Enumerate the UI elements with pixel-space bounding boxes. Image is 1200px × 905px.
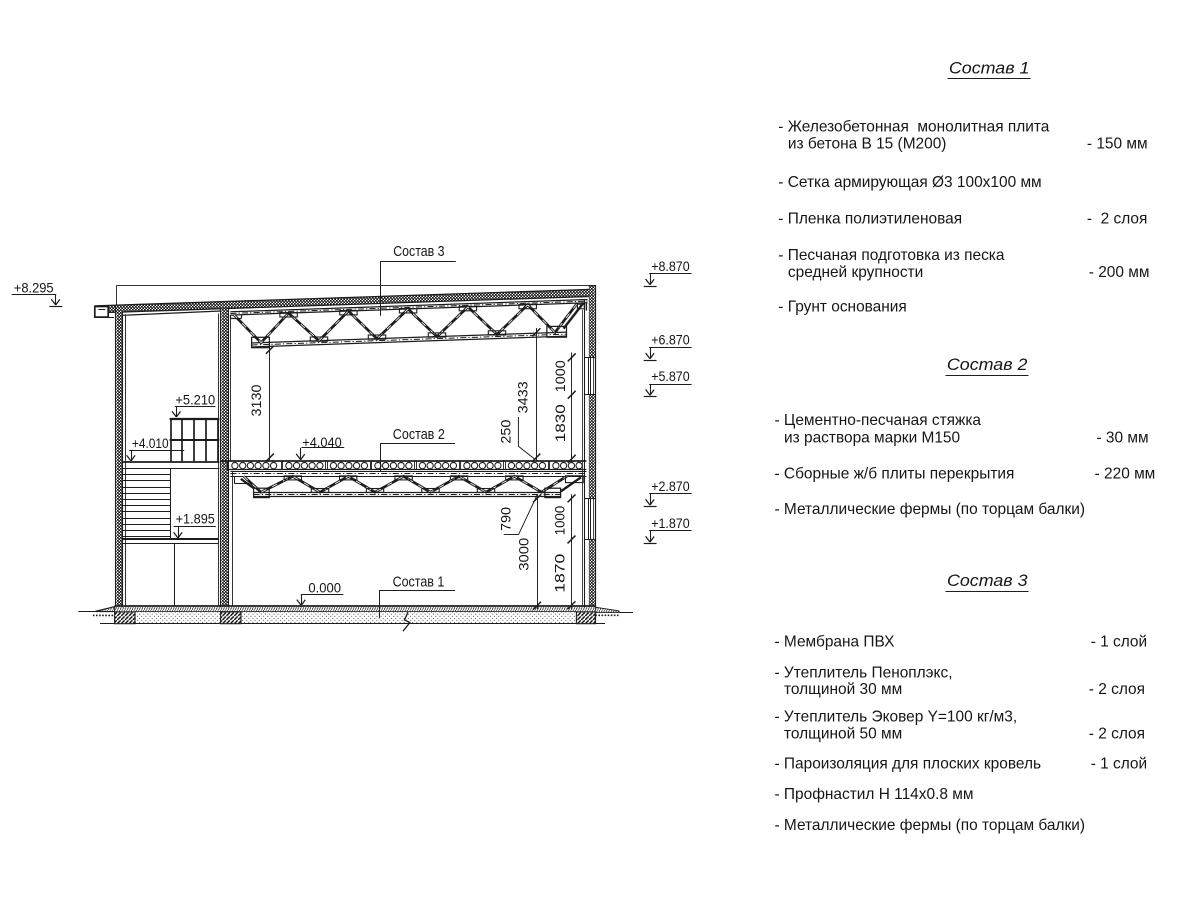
svg-text:- Металлические фермы (по торц: - Металлические фермы (по торцам балки) bbox=[775, 501, 1086, 518]
svg-text:+2.870: +2.870 bbox=[651, 479, 690, 495]
svg-text:- 1 слой: - 1 слой bbox=[1091, 634, 1147, 651]
svg-text:Состав 2: Состав 2 bbox=[393, 427, 445, 443]
svg-text:- Цементно-песчаная стяжка: - Цементно-песчаная стяжка bbox=[775, 412, 982, 429]
svg-text:- Металлические фермы (по торц: - Металлические фермы (по торцам балки) bbox=[775, 817, 1086, 834]
svg-text:+1.895: +1.895 bbox=[176, 511, 215, 527]
svg-text:+4.010: +4.010 bbox=[132, 436, 169, 452]
svg-text:- Пароизоляция для плоских кро: - Пароизоляция для плоских кровель bbox=[775, 756, 1042, 773]
svg-text:3130: 3130 bbox=[248, 384, 264, 416]
svg-text:Состав 3: Состав 3 bbox=[393, 244, 444, 260]
svg-text:1000: 1000 bbox=[552, 506, 568, 536]
svg-text:- Мембрана ПВХ: - Мембрана ПВХ bbox=[775, 634, 895, 651]
svg-text:+5.210: +5.210 bbox=[175, 392, 215, 408]
svg-text:- Песчаная подготовка из песка: - Песчаная подготовка из песка bbox=[778, 247, 1005, 264]
svg-text:- 150 мм: - 150 мм bbox=[1087, 136, 1148, 153]
svg-text:из бетона В 15 (М200): из бетона В 15 (М200) bbox=[788, 136, 947, 153]
svg-text:+4.040: +4.040 bbox=[302, 435, 341, 451]
svg-text:- Железобетонная монолитная п: - Железобетонная монолитная плита bbox=[778, 119, 1049, 136]
svg-text:+6.870: +6.870 bbox=[651, 333, 690, 349]
svg-text:толщиной 50 мм: толщиной 50 мм bbox=[784, 726, 902, 743]
svg-text:1000: 1000 bbox=[552, 360, 568, 392]
svg-text:- Профнастил Н 114х0.8 мм: - Профнастил Н 114х0.8 мм bbox=[775, 786, 974, 803]
svg-text:1870: 1870 bbox=[552, 554, 568, 593]
svg-text:- 2 слоя: - 2 слоя bbox=[1089, 726, 1145, 743]
svg-text:+8.295: +8.295 bbox=[14, 280, 54, 296]
svg-text:Состав 2: Состав 2 bbox=[947, 355, 1028, 374]
svg-text:+8.870: +8.870 bbox=[651, 259, 690, 275]
svg-text:- Грунт основания: - Грунт основания bbox=[778, 299, 906, 316]
svg-text:Состав 3: Состав 3 bbox=[947, 571, 1028, 590]
svg-text:790: 790 bbox=[498, 507, 514, 531]
svg-text:толщиной 30 мм: толщиной 30 мм bbox=[784, 681, 902, 698]
svg-text:+5.870: +5.870 bbox=[651, 369, 690, 385]
svg-text:+1.870: +1.870 bbox=[651, 516, 690, 532]
svg-text:- 200 мм: - 200 мм bbox=[1089, 264, 1150, 281]
svg-text:1830: 1830 bbox=[552, 404, 568, 442]
svg-text:- 2 слоя: - 2 слоя bbox=[1087, 211, 1147, 228]
svg-text:- Сетка армирующая Ø3 100х100: - Сетка армирующая Ø3 100х100 мм bbox=[778, 174, 1041, 191]
svg-text:- 30 мм: - 30 мм bbox=[1097, 429, 1149, 446]
svg-text:- Сборные ж/б плиты перекрытия: - Сборные ж/б плиты перекрытия bbox=[775, 466, 1015, 483]
svg-text:Состав 1: Состав 1 bbox=[393, 575, 445, 591]
svg-text:средней крупности: средней крупности bbox=[788, 264, 923, 281]
svg-text:- Пленка полиэтиленовая: - Пленка полиэтиленовая bbox=[778, 211, 962, 228]
svg-text:- 1 слой: - 1 слой bbox=[1091, 756, 1147, 773]
svg-text:- 220 мм: - 220 мм bbox=[1095, 466, 1156, 483]
svg-text:- Утеплитель Пеноплэкс,: - Утеплитель Пеноплэкс, bbox=[775, 664, 953, 681]
svg-text:3000: 3000 bbox=[516, 538, 532, 571]
svg-text:из раствора марки М150: из раствора марки М150 bbox=[784, 429, 960, 446]
svg-text:- 2 слоя: - 2 слоя bbox=[1089, 681, 1145, 698]
svg-text:- Утеплитель Эковер Y=100 кг/м: - Утеплитель Эковер Y=100 кг/м3, bbox=[775, 708, 1018, 725]
svg-text:3433: 3433 bbox=[515, 381, 531, 413]
svg-text:250: 250 bbox=[498, 419, 514, 443]
svg-text:Состав 1: Состав 1 bbox=[949, 59, 1030, 78]
